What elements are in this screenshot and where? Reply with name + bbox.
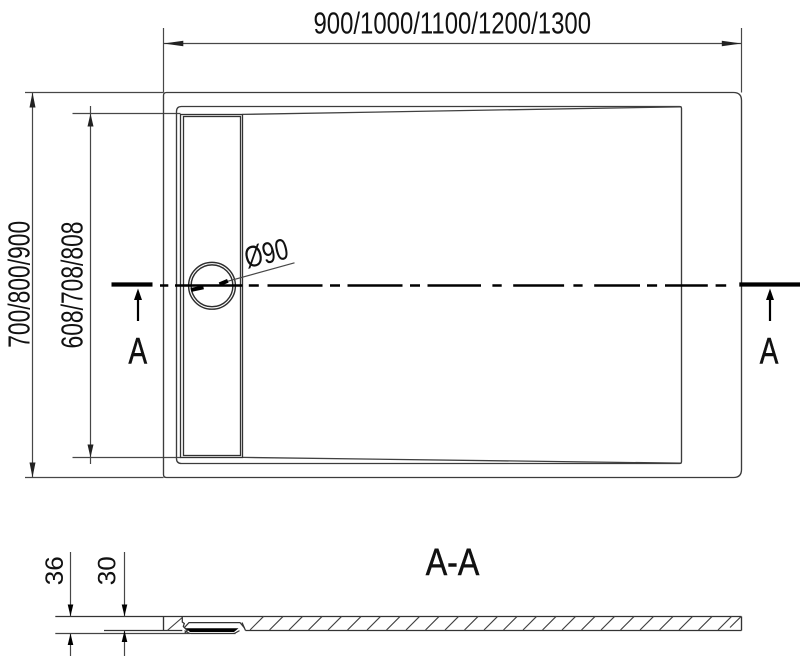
svg-text:30: 30 xyxy=(94,556,122,585)
svg-text:36: 36 xyxy=(41,556,69,585)
svg-text:A: A xyxy=(129,330,148,371)
svg-text:A-A: A-A xyxy=(426,542,480,584)
svg-text:A: A xyxy=(760,330,779,371)
svg-text:900/1000/1100/1200/1300: 900/1000/1100/1200/1300 xyxy=(314,6,592,41)
svg-text:700/800/900: 700/800/900 xyxy=(2,221,37,348)
svg-text:608/708/808: 608/708/808 xyxy=(55,222,90,349)
